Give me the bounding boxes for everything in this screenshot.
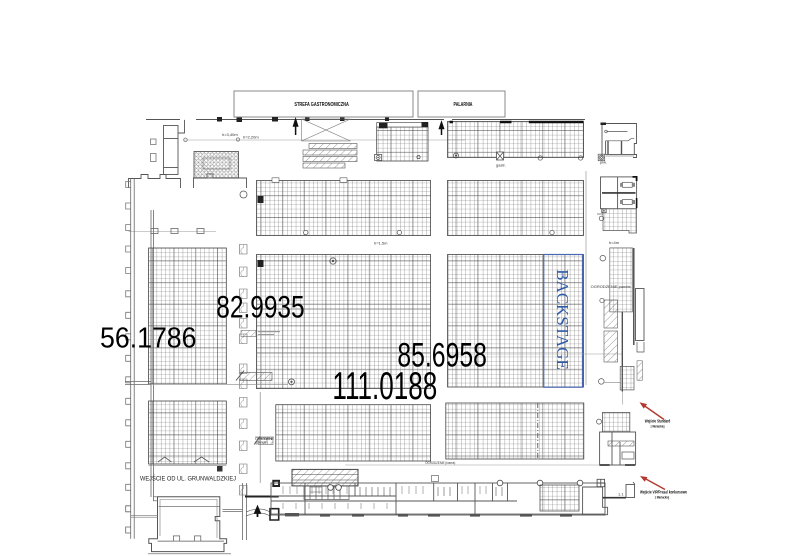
svg-text:z Mariackiej: z Mariackiej [655, 495, 670, 500]
svg-text:z Mariackiej: z Mariackiej [651, 424, 665, 429]
svg-text:111.0188: 111.0188 [332, 365, 437, 408]
svg-text:h=2,20m: h=2,20m [243, 135, 259, 140]
svg-text:STREFA GASTRONOMICZNA: STREFA GASTRONOMICZNA [294, 102, 349, 108]
svg-text:82.9935: 82.9935 [216, 289, 304, 325]
svg-text:h=4m: h=4m [609, 240, 620, 245]
svg-text:gastr.: gastr. [496, 163, 506, 168]
svg-text:OGRODZENIE (brama): OGRODZENIE (brama) [425, 460, 455, 465]
svg-text:piw.: piw. [600, 160, 607, 165]
svg-text:h=1,5m: h=1,5m [374, 241, 388, 246]
svg-text:PALARNIA: PALARNIA [454, 102, 473, 108]
svg-text:1.1: 1.1 [618, 492, 624, 497]
svg-text:WEJŚCIE OD UL. GRUNWALDZKIEJ: WEJŚCIE OD UL. GRUNWALDZKIEJ [140, 475, 236, 483]
svg-text:56.1786: 56.1786 [100, 322, 197, 354]
svg-text:h=3,40m: h=3,40m [222, 132, 238, 137]
svg-text:BACKSTAGE: BACKSTAGE [553, 269, 572, 370]
